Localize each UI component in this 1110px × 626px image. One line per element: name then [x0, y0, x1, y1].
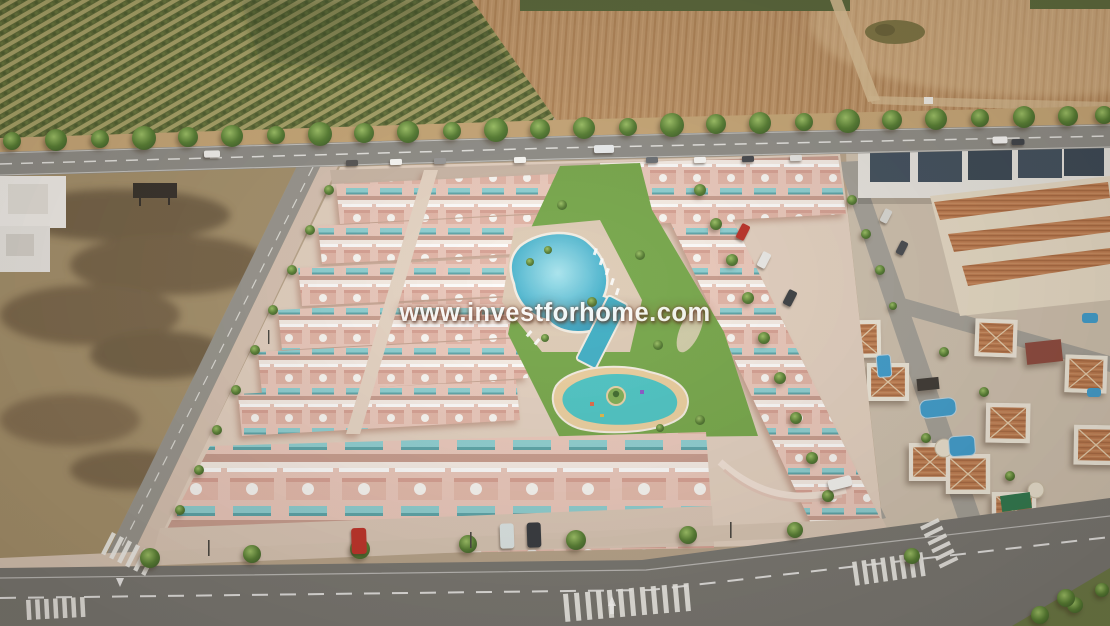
- pergola: [916, 377, 939, 391]
- hedge-strip: [520, 0, 850, 11]
- field-hut: [924, 97, 933, 104]
- scrub-cluster: [865, 20, 925, 44]
- terraced-row: [930, 176, 1110, 316]
- billboard: [133, 183, 177, 198]
- watermark: www.investforhome.com: [399, 299, 710, 328]
- dark-red-roof: [1025, 339, 1063, 365]
- aerial-photo: www.investforhome.com: [0, 0, 1110, 626]
